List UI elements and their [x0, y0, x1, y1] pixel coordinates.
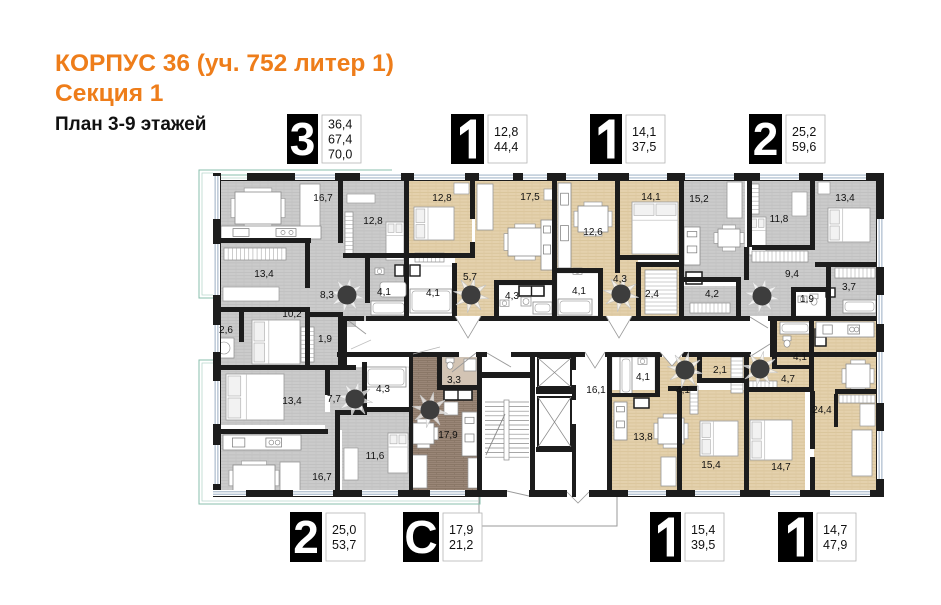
svg-text:13,8: 13,8 — [633, 432, 653, 443]
svg-text:4,7: 4,7 — [781, 374, 795, 385]
svg-text:16,7: 16,7 — [312, 472, 332, 483]
svg-text:12,8: 12,8 — [432, 193, 452, 204]
svg-text:4,2: 4,2 — [705, 289, 719, 300]
svg-text:21,2: 21,2 — [449, 538, 473, 552]
svg-text:1,9: 1,9 — [800, 294, 814, 305]
svg-text:1,9: 1,9 — [318, 334, 332, 345]
svg-text:14,7: 14,7 — [823, 523, 847, 537]
svg-text:17,5: 17,5 — [520, 192, 540, 203]
svg-text:3: 3 — [290, 113, 316, 165]
svg-text:13,4: 13,4 — [835, 193, 855, 204]
svg-text:37,5: 37,5 — [632, 140, 656, 154]
svg-text:36,4: 36,4 — [328, 118, 352, 132]
svg-text:53,7: 53,7 — [332, 538, 356, 552]
svg-text:4,3: 4,3 — [505, 291, 519, 302]
svg-text:4,1: 4,1 — [676, 385, 690, 396]
svg-text:7,7: 7,7 — [327, 394, 341, 405]
svg-text:11,6: 11,6 — [366, 451, 385, 462]
svg-text:25,2: 25,2 — [792, 125, 816, 139]
svg-text:14,1: 14,1 — [641, 192, 661, 203]
svg-text:12,6: 12,6 — [583, 227, 603, 238]
svg-text:25,0: 25,0 — [332, 523, 356, 537]
svg-text:2: 2 — [293, 511, 319, 563]
svg-text:КОРПУС 36 (уч. 752 литер 1): КОРПУС 36 (уч. 752 литер 1) — [55, 50, 394, 77]
svg-text:2,4: 2,4 — [645, 289, 659, 300]
svg-text:15,2: 15,2 — [689, 194, 709, 205]
svg-text:17,9: 17,9 — [438, 430, 458, 441]
svg-text:5,7: 5,7 — [463, 272, 477, 283]
svg-text:14,7: 14,7 — [771, 462, 791, 473]
svg-text:4,1: 4,1 — [426, 288, 440, 299]
svg-text:4,1: 4,1 — [377, 287, 391, 298]
svg-text:14,1: 14,1 — [632, 125, 656, 139]
svg-text:3,7: 3,7 — [842, 282, 856, 293]
svg-text:Секция 1: Секция 1 — [55, 80, 163, 107]
svg-text:3,3: 3,3 — [447, 375, 461, 386]
svg-text:11,8: 11,8 — [770, 214, 789, 225]
svg-text:47,9: 47,9 — [823, 538, 847, 552]
svg-text:13,4: 13,4 — [254, 269, 274, 280]
svg-text:4,1: 4,1 — [636, 372, 650, 383]
svg-text:8,3: 8,3 — [320, 290, 334, 301]
svg-text:16,1: 16,1 — [586, 385, 606, 396]
svg-text:67,4: 67,4 — [328, 133, 352, 147]
svg-text:24,4: 24,4 — [812, 405, 832, 416]
svg-text:План 3-9 этажей: План 3-9 этажей — [55, 114, 206, 135]
svg-text:2: 2 — [753, 113, 779, 165]
svg-text:4,1: 4,1 — [572, 286, 586, 297]
svg-text:15,4: 15,4 — [701, 460, 721, 471]
svg-text:4,3: 4,3 — [613, 274, 627, 285]
svg-text:59,6: 59,6 — [792, 140, 816, 154]
svg-text:10,2: 10,2 — [282, 309, 302, 320]
svg-text:12,8: 12,8 — [363, 216, 383, 227]
svg-text:12,8: 12,8 — [494, 125, 518, 139]
svg-text:16,7: 16,7 — [313, 193, 333, 204]
svg-text:2,6: 2,6 — [219, 325, 233, 336]
svg-text:13,4: 13,4 — [282, 396, 302, 407]
svg-text:44,4: 44,4 — [494, 140, 518, 154]
svg-text:15,4: 15,4 — [691, 523, 715, 537]
svg-text:4,1: 4,1 — [793, 352, 807, 363]
svg-text:70,0: 70,0 — [328, 148, 352, 162]
svg-text:С: С — [404, 511, 437, 563]
svg-text:2,1: 2,1 — [713, 365, 727, 376]
svg-text:4,3: 4,3 — [376, 384, 390, 395]
svg-text:17,9: 17,9 — [449, 523, 473, 537]
svg-text:39,5: 39,5 — [691, 538, 715, 552]
svg-text:9,4: 9,4 — [785, 269, 799, 280]
